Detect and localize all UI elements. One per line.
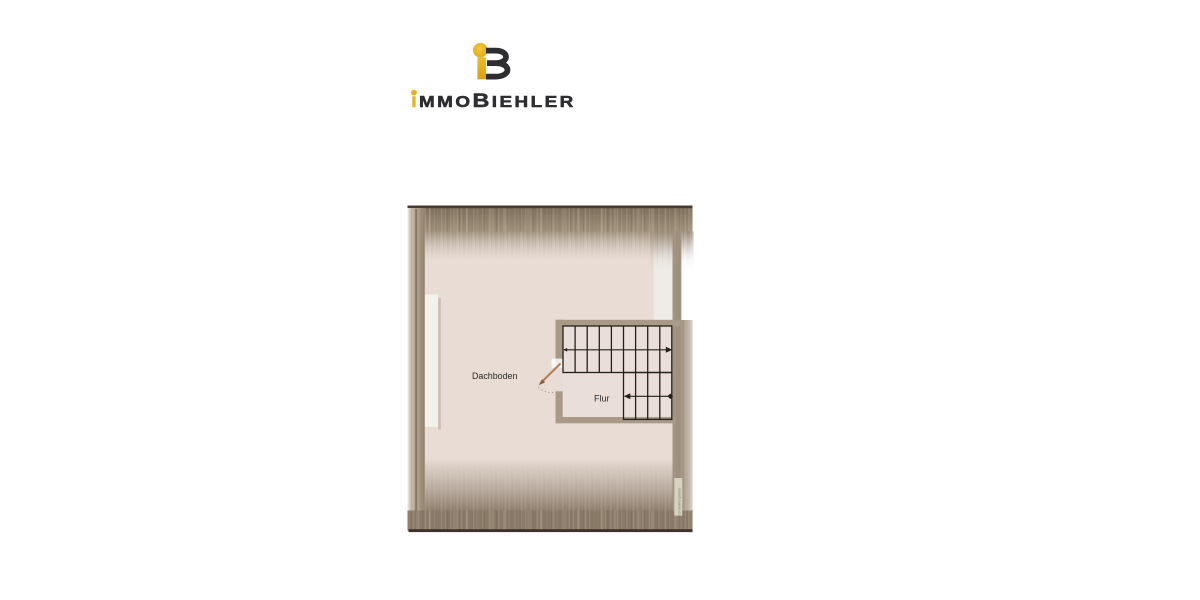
svg-text:MMOBIEHLER: MMOBIEHLER <box>419 90 576 111</box>
svg-text:Flur: Flur <box>594 393 610 403</box>
svg-text:Dachboden: Dachboden <box>472 371 517 381</box>
svg-text:Grundrissplaner: Grundrissplaner <box>678 487 682 515</box>
